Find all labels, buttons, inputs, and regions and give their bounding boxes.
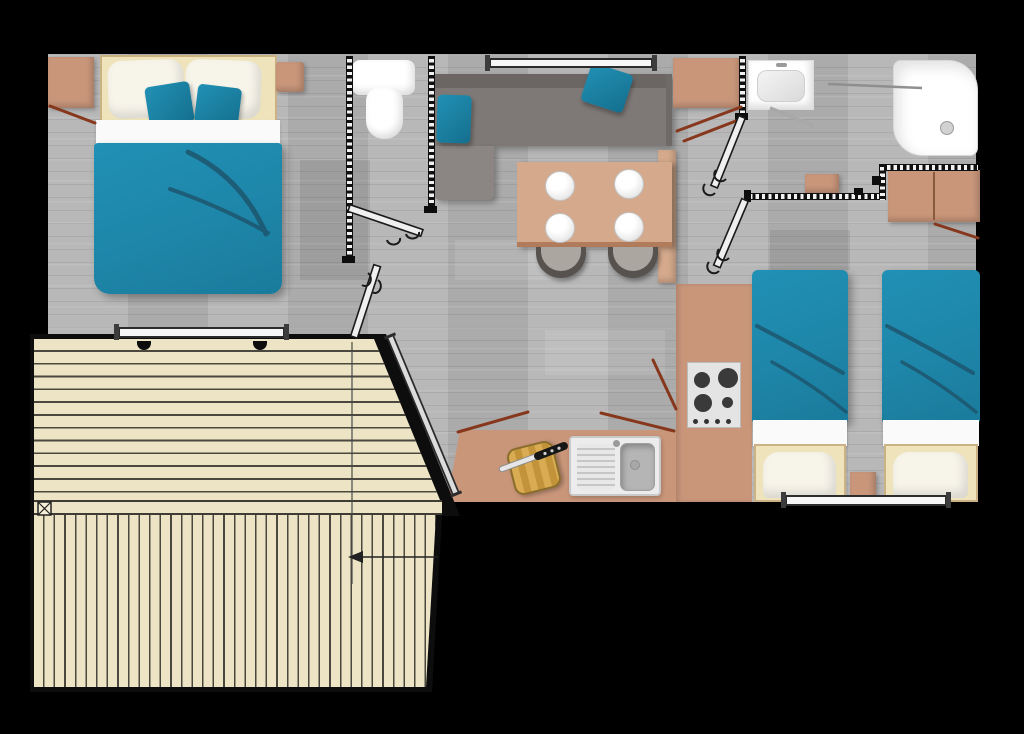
dining-table <box>517 162 672 247</box>
terrace-band <box>34 500 442 515</box>
wardrobe-door-divider <box>933 172 935 220</box>
toilet-bowl <box>366 87 403 139</box>
twin-bed-1-duvet <box>752 270 848 422</box>
wall-end-cap <box>735 113 748 120</box>
terrace-lower-deck <box>34 515 436 687</box>
sink-faucet <box>613 440 620 447</box>
hob-knob <box>726 419 731 424</box>
window-cap <box>485 55 490 71</box>
window-cap <box>114 324 119 340</box>
hob <box>687 362 741 428</box>
wall-hallway <box>739 56 746 115</box>
plate <box>545 171 575 201</box>
twin-bed-1-pillow <box>763 452 836 498</box>
wall-end-cap <box>744 190 751 202</box>
door-hinge <box>872 176 881 185</box>
hob-knob <box>715 419 720 424</box>
wall-end-cap <box>342 256 355 263</box>
wall-bedroom-wc <box>346 56 353 258</box>
fridge-cabinet <box>673 58 741 108</box>
plate <box>545 213 575 243</box>
door-hinge <box>854 188 863 195</box>
floor-plan-canvas <box>0 0 1024 734</box>
burner <box>718 368 738 388</box>
terrace-upper-deck <box>34 339 444 500</box>
corner-wardrobe <box>48 57 94 108</box>
sofa-chaise <box>434 146 494 200</box>
twin-bed-2-duvet <box>882 270 980 422</box>
hob-knob <box>693 419 698 424</box>
window-cap <box>284 324 289 340</box>
plate <box>614 169 644 199</box>
sink-drain <box>630 460 640 470</box>
twin-bed-2-sheet <box>883 420 979 446</box>
washbasin-bowl <box>757 70 805 102</box>
window-living <box>489 58 653 68</box>
sofa-cushion-1 <box>436 94 472 143</box>
sink-unit <box>569 436 661 496</box>
wall-end-cap <box>424 206 437 213</box>
bedside-shelf <box>276 62 304 92</box>
twin-bed-2-pillow <box>893 452 968 498</box>
hob-knob <box>704 419 709 424</box>
sink-drainboard <box>577 444 615 490</box>
shower-drain <box>940 121 954 135</box>
burner <box>694 372 710 388</box>
washbasin <box>748 60 814 110</box>
wall-twin-bedroom-north <box>746 193 884 200</box>
bathroom-shelf-box <box>805 174 839 193</box>
plate <box>614 212 644 242</box>
wardrobe <box>888 170 980 222</box>
wall-wc-living <box>428 56 435 208</box>
window-cap <box>652 55 657 71</box>
window-cap <box>946 492 951 508</box>
twin-bed-1-sheet <box>753 420 847 446</box>
wall-bathroom-east <box>884 164 978 171</box>
window-master-bedroom <box>118 327 285 338</box>
bed-duvet <box>94 143 282 294</box>
washbasin-faucet <box>776 63 787 67</box>
burner <box>722 397 733 408</box>
window-twin-bedroom <box>785 495 947 506</box>
window-cap <box>781 492 786 508</box>
shower-tray <box>893 60 978 156</box>
burner <box>694 394 712 412</box>
